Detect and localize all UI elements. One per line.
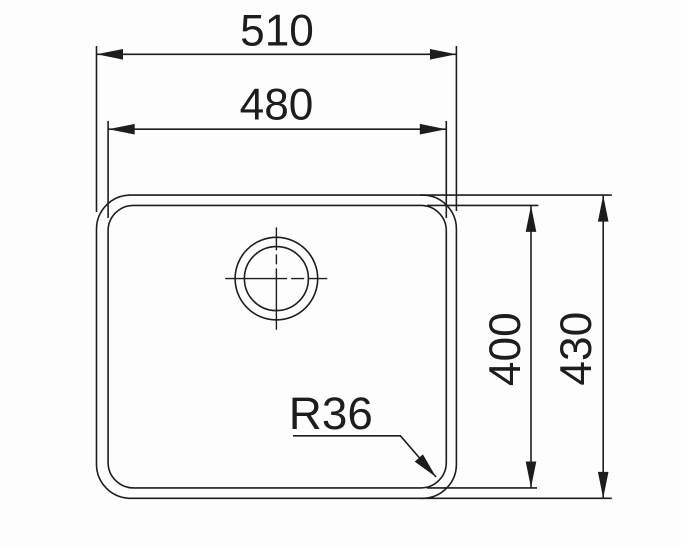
svg-text:400: 400 — [481, 312, 530, 386]
svg-text:R36: R36 — [289, 388, 373, 439]
svg-text:430: 430 — [552, 312, 601, 386]
svg-text:510: 510 — [240, 6, 314, 55]
svg-text:480: 480 — [240, 80, 314, 129]
